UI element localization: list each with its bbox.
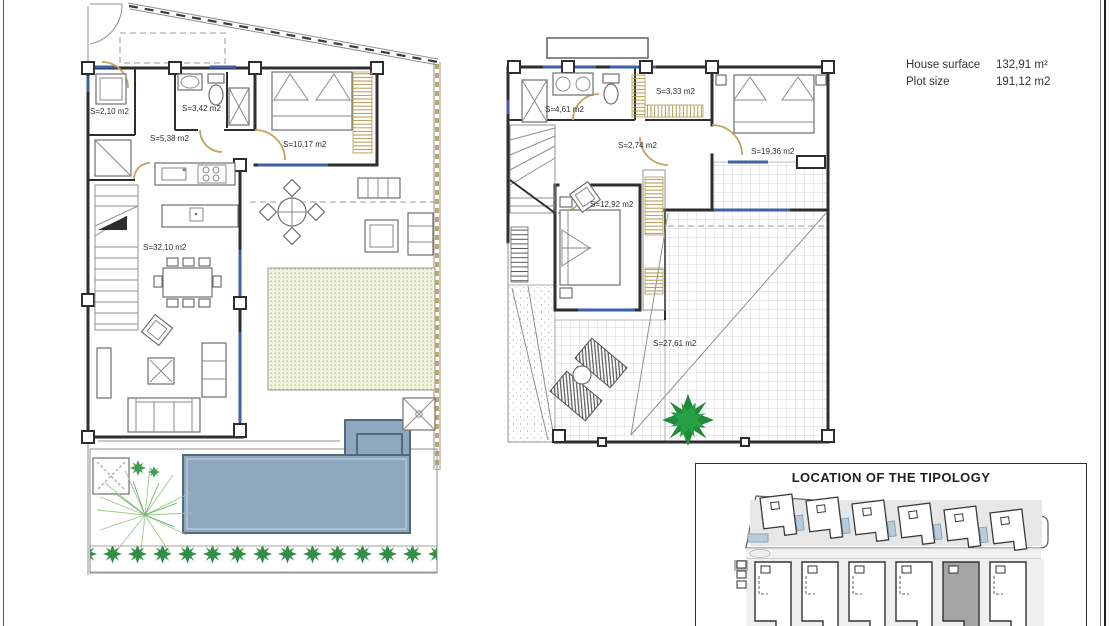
- shower-icon: [522, 80, 547, 122]
- room-label-utility: S=2,10 m2: [90, 107, 129, 116]
- unit-number-box: [737, 571, 746, 578]
- sheet-border-left: [3, 0, 4, 626]
- sheet-border-right-inner: [1100, 0, 1101, 626]
- stairs-icon: [510, 125, 555, 282]
- lounge-chair-icon: [408, 213, 433, 255]
- sofa-icon: [128, 398, 200, 432]
- room-label-bathroom: S=3,42 m2: [182, 104, 221, 113]
- palm-plant-icon: [662, 394, 714, 446]
- patio-table-icon: [260, 180, 325, 245]
- tv-unit-icon: [202, 343, 226, 397]
- wardrobe-icon: [353, 72, 372, 153]
- duct-box-icon: [95, 140, 131, 176]
- plot-size-label: Plot size: [906, 74, 996, 91]
- site-house: [755, 562, 791, 626]
- side-table-icon: [573, 366, 591, 384]
- room-label-wardrobe: S=3,33 m2: [656, 87, 695, 96]
- room-label-landing: S=2,74 m2: [618, 141, 657, 150]
- location-inset: LOCATION OF THE TIPOLOGY: [695, 463, 1087, 626]
- outdoor-table-icon: [365, 220, 398, 252]
- site-house: [896, 562, 932, 626]
- louver-icon: [511, 227, 528, 282]
- roof-box-outline: [547, 38, 648, 58]
- site-plan: [696, 490, 1087, 626]
- toilet-icon: [208, 74, 224, 105]
- room-label-bathroom: S=4,61 m2: [545, 105, 584, 114]
- overhang-outline: [120, 33, 225, 63]
- unit-number-box: [737, 561, 746, 568]
- unit-number-box: [737, 581, 746, 588]
- site-house: [802, 562, 838, 626]
- bed-icon: [272, 72, 352, 130]
- outdoor-bench-icon: [358, 178, 400, 198]
- garden-lawn: [268, 268, 435, 390]
- house-surface-row: House surface 132,91 m²: [906, 57, 1050, 74]
- outdoor-shower-icon: [403, 398, 435, 430]
- room-label-bedroom: S=10,17 m2: [283, 140, 327, 149]
- sideboard-icon: [97, 348, 111, 398]
- site-house-highlighted: [943, 562, 979, 626]
- sheet-border-right-outer: [1104, 0, 1106, 626]
- road: [746, 548, 1041, 559]
- washer-icon: [96, 74, 126, 104]
- side-yard-stipple: [508, 285, 555, 442]
- bed-icon: [560, 197, 620, 298]
- room-label-hall: S=5,38 m2: [150, 134, 189, 143]
- hedge-row: [90, 546, 437, 572]
- kitchen-island-icon: [162, 205, 238, 227]
- kitchen-counter-icon: [155, 163, 235, 185]
- planter-icon: [93, 458, 129, 494]
- shower-icon: [229, 88, 249, 125]
- bed-icon: [716, 75, 826, 133]
- stairs-icon: [95, 185, 138, 330]
- site-house: [990, 562, 1026, 626]
- bathroom-fixtures: [522, 73, 619, 122]
- plot-size-row: Plot size 191,12 m2: [906, 74, 1050, 91]
- house-surface-label: House surface: [906, 57, 996, 74]
- room-label-living: S=32,10 m2: [143, 243, 187, 252]
- site-house: [849, 562, 885, 626]
- shrub-icon: [130, 460, 146, 476]
- coffee-table-icon: [148, 358, 174, 384]
- drawing-sheet: House surface 132,91 m² Plot size 191,12…: [0, 0, 1110, 626]
- bathroom-fixtures: [178, 74, 249, 125]
- room-label-terrace: S=27,61 m2: [653, 339, 697, 348]
- dining-table-icon: [154, 258, 221, 307]
- house-surface-value: 132,91 m²: [996, 57, 1048, 74]
- ground-floor-plan: S=2,10 m2 S=3,42 m2 S=5,38 m2 S=10,17 m2…: [50, 0, 450, 600]
- plot-size-value: 191,12 m2: [996, 74, 1050, 91]
- first-floor-plan: S=4,61 m2 S=3,33 m2 S=2,74 m2 S=19,36 m2…: [498, 30, 838, 460]
- surface-summary: House surface 132,91 m² Plot size 191,12…: [906, 57, 1050, 91]
- location-inset-title: LOCATION OF THE TIPOLOGY: [696, 470, 1086, 485]
- room-label-bedroom-1: S=19,36 m2: [751, 147, 795, 156]
- room-label-bedroom-2: S=12,92 m2: [590, 200, 634, 209]
- toilet-icon: [603, 74, 619, 104]
- double-sink-icon: [553, 73, 593, 95]
- entry-gate-icon: [90, 4, 122, 44]
- site-pool: [748, 534, 768, 542]
- armchair-icon: [142, 315, 173, 346]
